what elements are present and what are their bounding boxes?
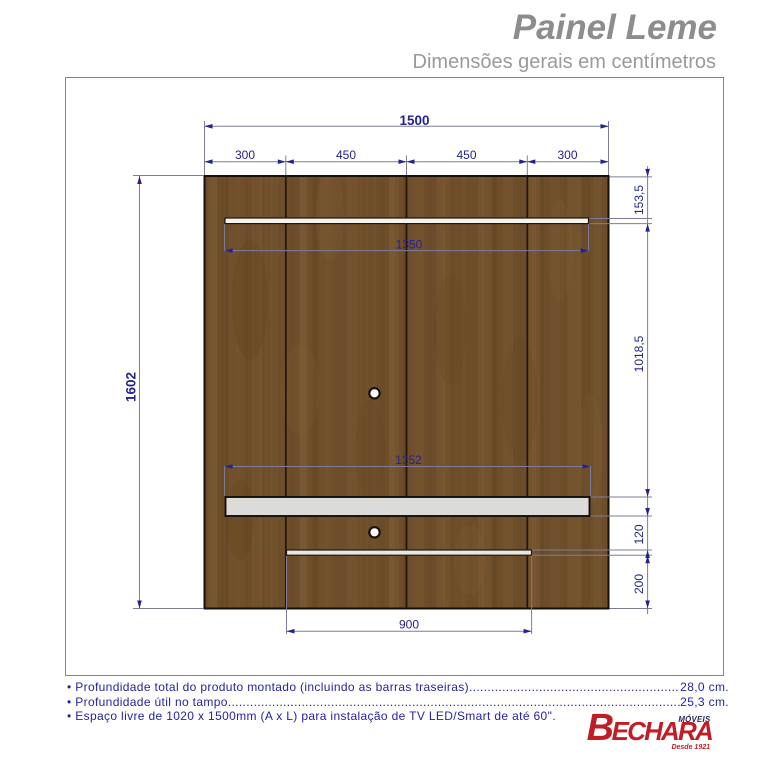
svg-text:1352: 1352 (395, 453, 422, 467)
svg-text:1350: 1350 (396, 237, 423, 251)
svg-text:153,5: 153,5 (632, 185, 646, 215)
svg-text:200: 200 (632, 574, 646, 594)
svg-text:120: 120 (632, 524, 646, 544)
svg-text:300: 300 (557, 148, 577, 162)
svg-text:1018,5: 1018,5 (632, 335, 646, 372)
svg-text:300: 300 (235, 148, 255, 162)
svg-text:1602: 1602 (124, 372, 139, 402)
svg-text:450: 450 (456, 148, 476, 162)
svg-text:900: 900 (399, 618, 419, 632)
svg-text:450: 450 (336, 148, 356, 162)
svg-text:1500: 1500 (399, 113, 429, 128)
